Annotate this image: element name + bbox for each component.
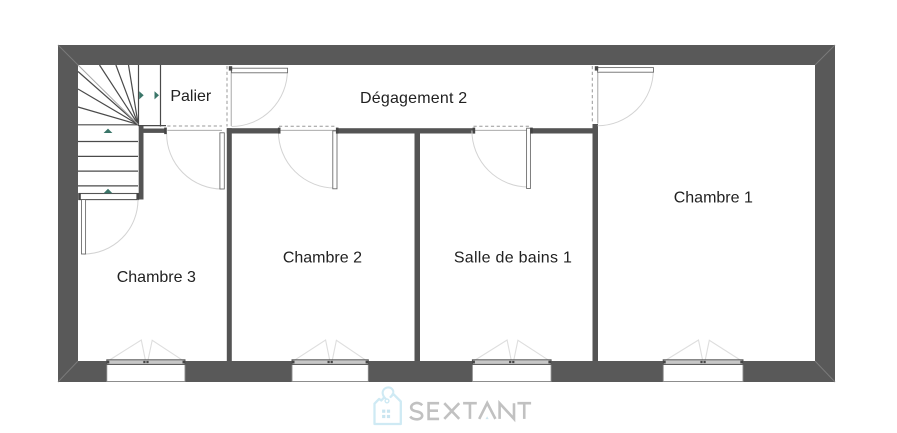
svg-text:Salle de bains 1: Salle de bains 1: [454, 250, 572, 267]
svg-text:Chambre 2: Chambre 2: [283, 250, 362, 267]
svg-text:Chambre 3: Chambre 3: [117, 269, 196, 286]
svg-text:Chambre 1: Chambre 1: [674, 189, 753, 206]
svg-text:Palier: Palier: [170, 88, 212, 105]
svg-text:Dégagement 2: Dégagement 2: [360, 90, 467, 107]
